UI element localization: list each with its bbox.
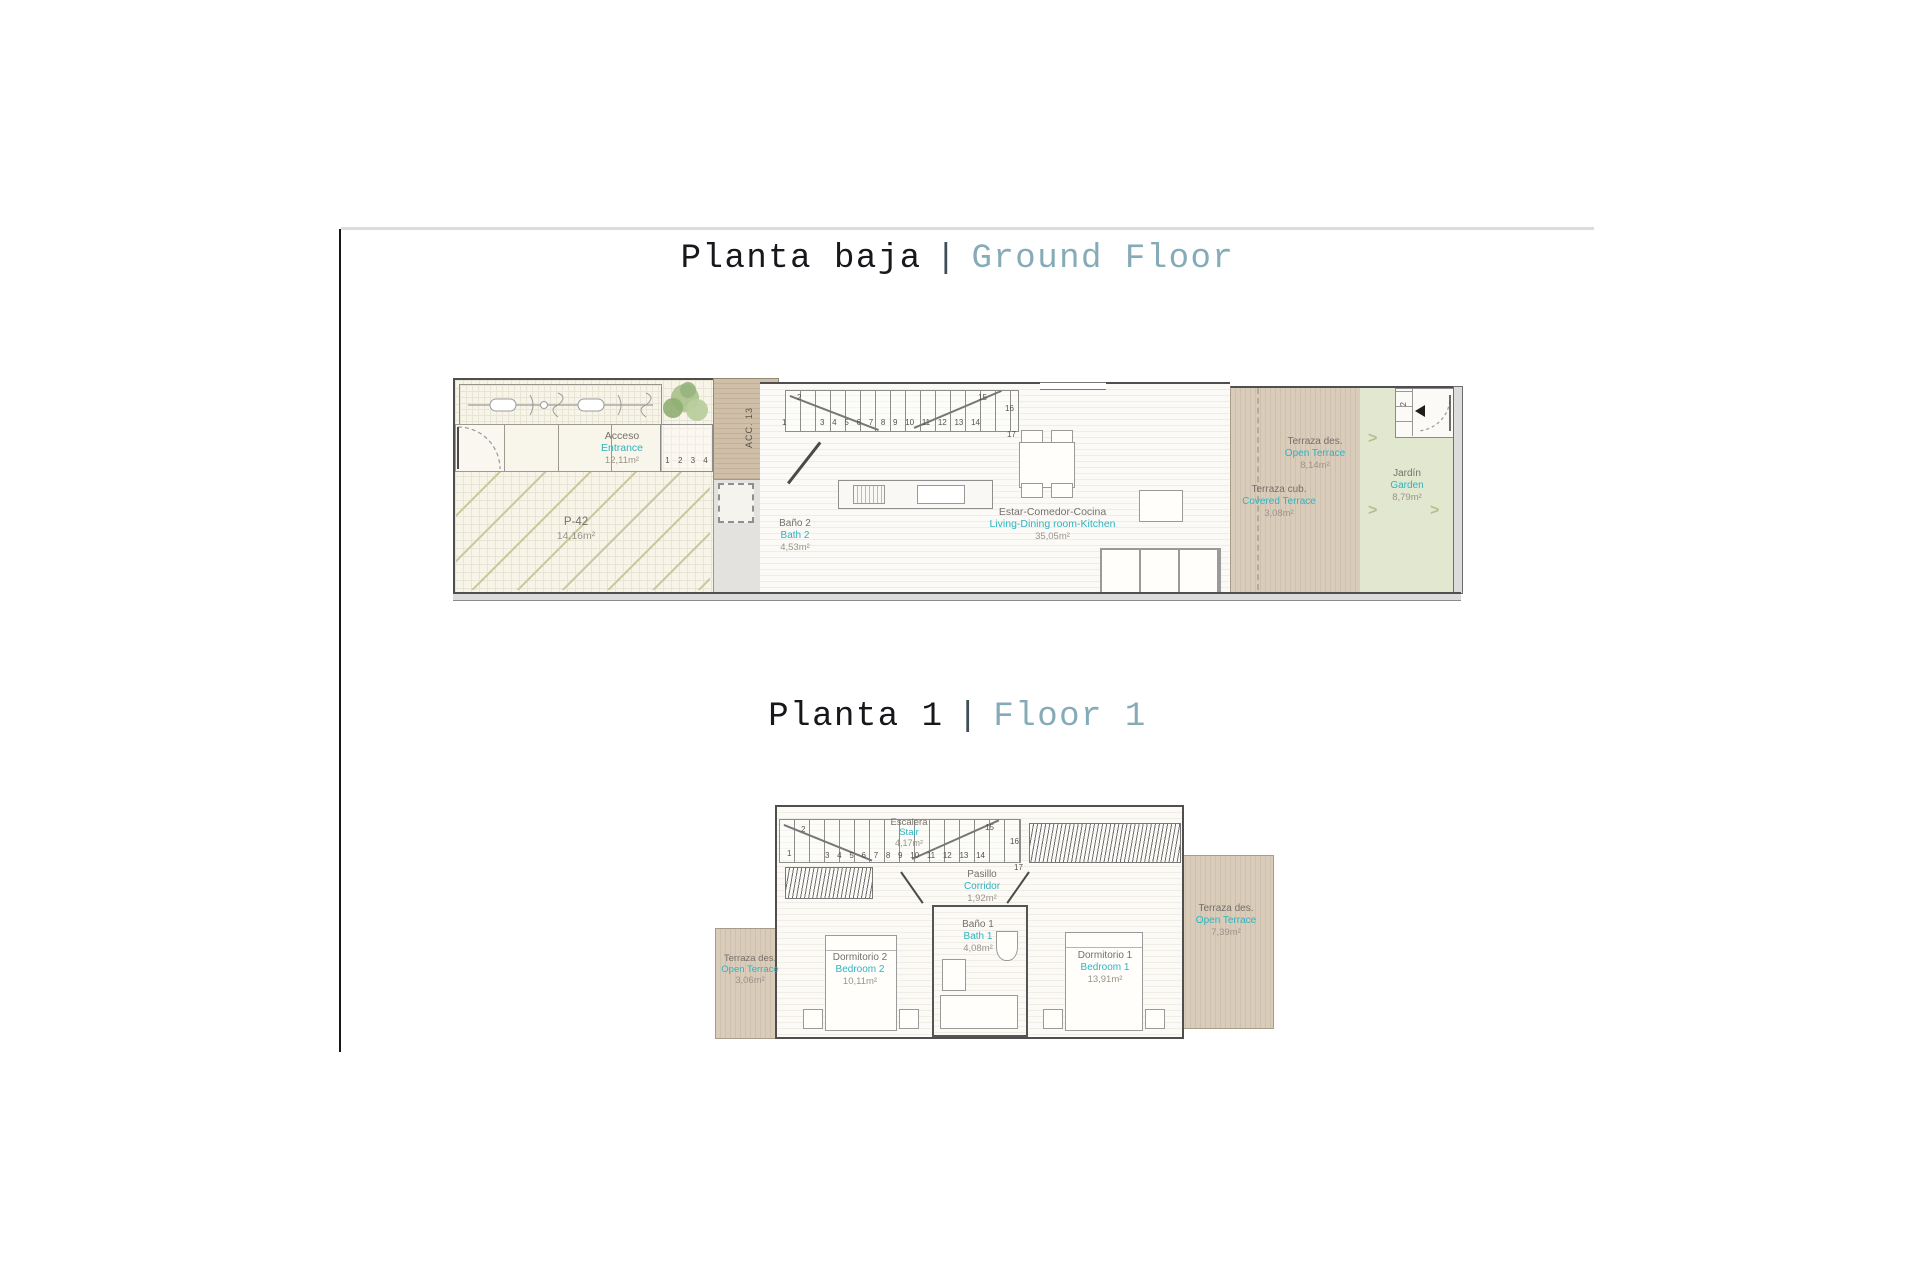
bedroom1-name-es: Dormitorio 1 — [1055, 950, 1155, 962]
entry-door-leaf — [787, 442, 821, 485]
entrance-area: 12,11m² — [581, 455, 663, 466]
open-terrace-area: 8,14m² — [1265, 460, 1365, 471]
entry-door-cell — [455, 424, 505, 472]
skylight — [718, 483, 754, 523]
bath1-name-es: Baño 1 — [937, 919, 1019, 931]
floor-plan-first: Terraza des. Open Terrace 3,06m² Terraza… — [715, 805, 1272, 1037]
bedroom2-name-en: Bedroom 2 — [810, 964, 910, 976]
open-terrace-name-es: Terraza des. — [1265, 436, 1365, 448]
chair — [1021, 483, 1043, 498]
room-label-bath1: Baño 1 Bath 1 4,08m² — [937, 919, 1019, 954]
entrance-name-en: Entrance — [581, 442, 663, 454]
stair-number: 15 — [985, 823, 994, 832]
door-arc-icon — [1416, 393, 1452, 433]
garden-name-en: Garden — [1363, 480, 1451, 492]
stair-number: 2 — [797, 393, 801, 402]
stair-number: 16 — [1010, 837, 1019, 846]
floorplan-sheet: Planta baja|Ground Floor — [0, 0, 1920, 1280]
stair-area: 4,17m² — [869, 839, 949, 849]
nightstand — [1043, 1009, 1063, 1029]
floor1-title-en: Floor 1 — [993, 698, 1146, 736]
terrace-right-name-es: Terraza des. — [1183, 903, 1269, 915]
entry-step-numbers: 1 2 3 4 — [662, 456, 711, 465]
garden-entry: 2 — [1395, 388, 1454, 438]
bedroom2-name-es: Dormitorio 2 — [810, 952, 910, 964]
living-area: 35,05m² — [945, 531, 1160, 542]
shower-tray — [940, 995, 1018, 1029]
room-label-open-terrace: Terraza des. Open Terrace 8,14m² — [1265, 436, 1365, 471]
room-label-entrance: Acceso Entrance 12,11m² — [581, 430, 663, 466]
utility-fixtures-icon — [460, 385, 661, 425]
stair-number: 1 — [787, 849, 791, 858]
stair-number-row: 3 4 5 6 7 8 9 10 11 12 13 14 — [825, 851, 987, 860]
covered-terrace-area: 3,08m² — [1223, 508, 1335, 519]
parking-name: P-42 — [511, 516, 641, 530]
living-name-en: Living-Dining room-Kitchen — [945, 518, 1160, 530]
washbasin — [942, 959, 966, 991]
covered-terrace-name-es: Terraza cub. — [1223, 484, 1335, 496]
nightstand — [899, 1009, 919, 1029]
kitchen-sink — [853, 485, 885, 504]
door-arc-icon — [456, 425, 502, 469]
bedroom1-area: 13,91m² — [1055, 974, 1155, 985]
title-divider: | — [922, 240, 972, 278]
floor1-body: 2 1 3 4 5 6 7 8 9 10 11 12 13 14 15 16 1… — [775, 805, 1184, 1039]
dining-table — [1019, 442, 1075, 488]
bath1-area: 4,08m² — [937, 943, 1019, 954]
storage-cell — [504, 424, 559, 472]
sheet-left-border — [339, 229, 341, 1052]
covered-terrace-name-en: Covered Terrace — [1223, 496, 1335, 508]
garden-chevron-icon: > — [1368, 502, 1377, 520]
room-label-bedroom2: Dormitorio 2 Bedroom 2 10,11m² — [810, 952, 910, 987]
title-divider: | — [944, 698, 994, 736]
room-label-corridor: Pasillo Corridor 1,92m² — [932, 869, 1032, 904]
garden-name-es: Jardín — [1363, 468, 1451, 480]
bed-pillow-line — [826, 936, 896, 951]
wardrobe-bedroom2 — [785, 867, 873, 899]
terrace-right — [1180, 855, 1274, 1029]
entrance-name-es: Acceso — [581, 430, 663, 442]
kitchen-hob — [917, 485, 965, 504]
terrace-left-name-en: Open Terrace — [712, 964, 788, 975]
access-corridor-label: ACC. 13 — [744, 407, 754, 448]
garden-area-value: 8,79m² — [1363, 492, 1451, 503]
terrace-left-area: 3,06m² — [712, 975, 788, 986]
bath2-name-es: Baño 2 — [762, 518, 828, 530]
room-label-parking: P-42 14,16m² — [511, 516, 641, 542]
ground-floor-title: Planta baja|Ground Floor — [453, 240, 1462, 278]
stair-number: 17 — [1007, 430, 1016, 439]
room-label-terrace-left: Terraza des. Open Terrace 3,06m² — [712, 953, 788, 987]
ground-floor-title-es: Planta baja — [681, 240, 922, 278]
corridor-name-es: Pasillo — [932, 869, 1032, 881]
corridor-name-en: Corridor — [932, 881, 1032, 893]
chair — [1051, 483, 1073, 498]
stair-number: 2 — [801, 825, 805, 834]
kitchen-counter — [838, 480, 993, 509]
bed-pillow-line — [1066, 933, 1142, 948]
room-label-covered-terrace: Terraza cub. Covered Terrace 3,08m² — [1223, 484, 1335, 519]
garden-step-number: 2 — [1399, 401, 1408, 406]
room-label-stair: Escalera Stair 4,17m² — [869, 818, 949, 849]
floor-plan-ground: Acceso Entrance 12,11m² 1 2 3 4 P-42 14,… — [453, 378, 1462, 599]
room-label-bedroom1: Dormitorio 1 Bedroom 1 13,91m² — [1055, 950, 1155, 985]
room-label-living: Estar-Comedor-Cocina Living-Dining room-… — [945, 506, 1160, 542]
open-terrace-name-en: Open Terrace — [1265, 448, 1365, 460]
nightstand — [803, 1009, 823, 1029]
bath2-name-en: Bath 2 — [762, 530, 828, 542]
nightstand — [1145, 1009, 1165, 1029]
bath1-name-en: Bath 1 — [937, 931, 1019, 943]
stair-number: 1 — [782, 418, 786, 427]
corridor-area: 1,92m² — [932, 893, 1032, 904]
stair-number: 16 — [1005, 404, 1014, 413]
bottom-wall — [453, 592, 1461, 601]
ground-floor-title-en: Ground Floor — [972, 240, 1235, 278]
utility-strip — [459, 384, 662, 426]
terrace-right-area: 7,39m² — [1183, 927, 1269, 938]
sheet-top-border — [341, 227, 1594, 230]
garden-chevron-icon: > — [1368, 430, 1377, 448]
living-room: 2 1 3 4 5 6 7 8 9 10 11 12 13 14 15 16 1… — [760, 382, 1230, 594]
garden-chevron-icon: > — [1430, 502, 1439, 520]
room-label-bath2: Baño 2 Bath 2 4,53m² — [762, 518, 828, 553]
plant-icon — [660, 380, 711, 426]
room-label-terrace-right: Terraza des. Open Terrace 7,39m² — [1183, 903, 1269, 938]
bedroom2-area: 10,11m² — [810, 976, 910, 987]
window — [1040, 382, 1106, 390]
stair-number: 15 — [978, 393, 987, 402]
right-wall — [1453, 386, 1463, 594]
terrace-right-name-en: Open Terrace — [1183, 915, 1269, 927]
parking-area: 14,16m² — [511, 530, 641, 542]
stair-number-row: 3 4 5 6 7 8 9 10 11 12 13 14 — [820, 418, 982, 427]
sofa — [1100, 548, 1221, 594]
bedroom1-name-en: Bedroom 1 — [1055, 962, 1155, 974]
bath2-area: 4,53m² — [762, 542, 828, 553]
terrace-left-name-es: Terraza des. — [712, 953, 788, 964]
door-leaf — [900, 871, 923, 903]
garden-entry-steps — [1396, 389, 1413, 436]
wardrobe-bedroom1 — [1029, 823, 1181, 863]
floor1-title: Planta 1|Floor 1 — [453, 698, 1462, 736]
room-label-garden: Jardín Garden 8,79m² — [1363, 468, 1451, 503]
dining-set — [1005, 430, 1087, 498]
living-name-es: Estar-Comedor-Cocina — [945, 506, 1160, 518]
floor1-title-es: Planta 1 — [768, 698, 943, 736]
